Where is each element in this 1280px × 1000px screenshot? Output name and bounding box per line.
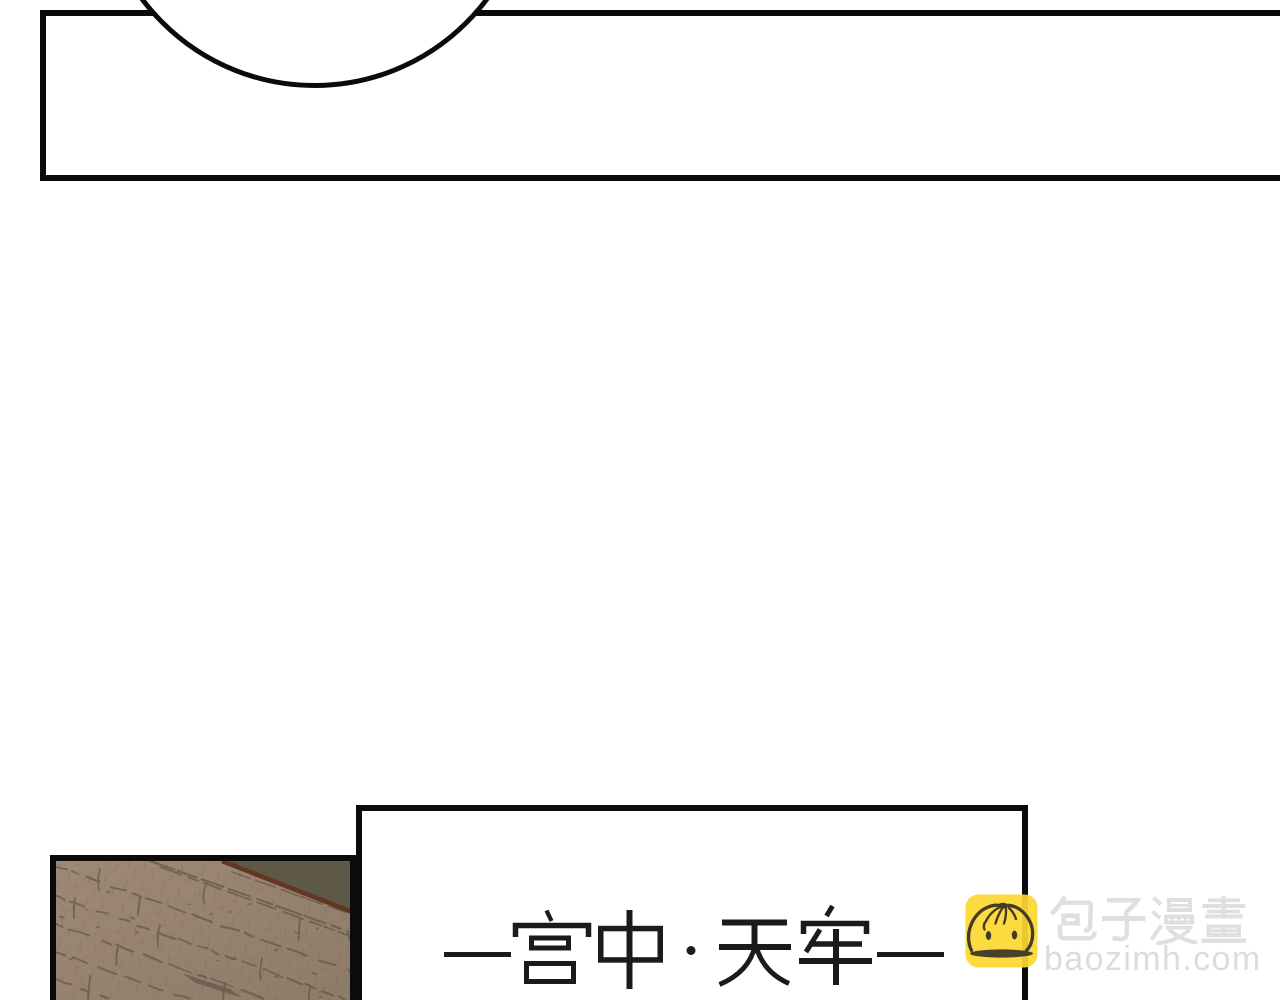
svg-text:baozimh.com: baozimh.com — [1044, 940, 1262, 978]
